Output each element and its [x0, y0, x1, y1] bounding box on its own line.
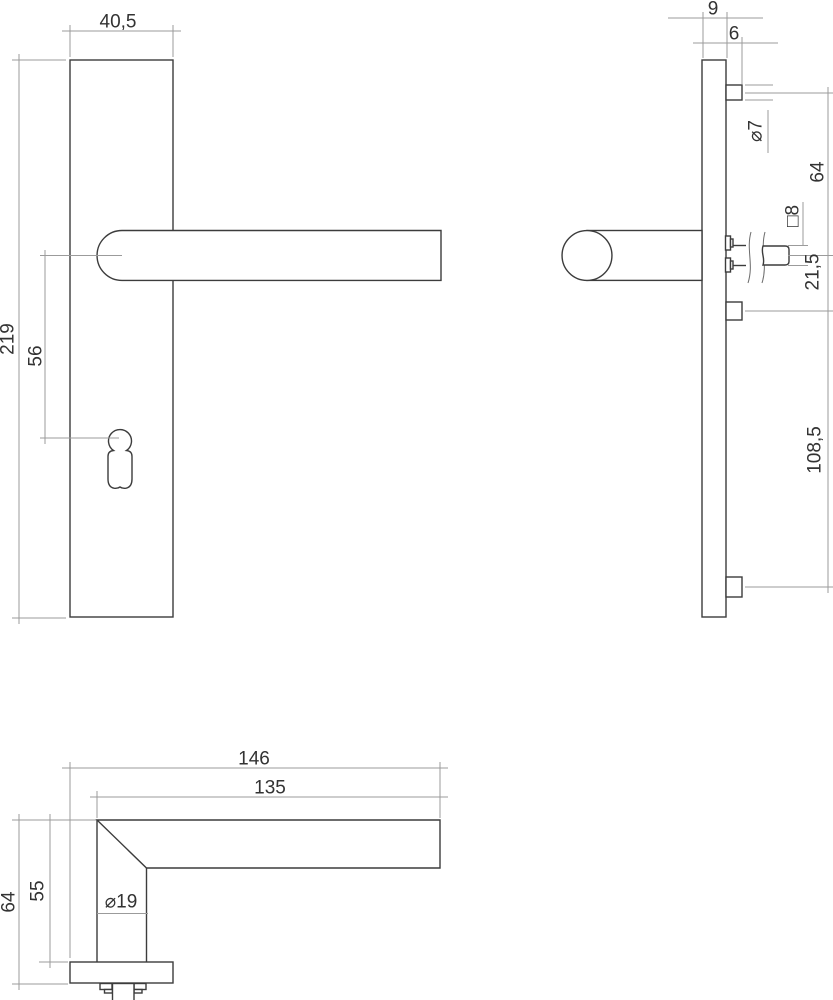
- top-plate-outline: [70, 962, 173, 983]
- top-handle-grip: [97, 820, 440, 868]
- dim-label-front-handle-to-keyhole: 56: [26, 345, 47, 366]
- dim-label-top-neck-depth: 55: [28, 880, 49, 901]
- dim-top-grip-length: 135: [90, 778, 448, 819]
- drawing-canvas: 40,5 219 56: [0, 0, 833, 1000]
- dim-label-front-plate-width: 40,5: [100, 12, 137, 33]
- dim-label-front-plate-height: 219: [0, 323, 19, 355]
- side-screw-boss-top: [726, 85, 742, 100]
- dim-side-screw-dia: ⌀7: [745, 85, 773, 153]
- dim-front-plate-height: 219: [0, 54, 66, 624]
- dim-label-side-screw-spacing: 108,5: [805, 426, 826, 474]
- top-view: 146 135 64 55 ⌀19: [0, 749, 448, 1000]
- dim-label-side-screw-to-spindle: 64: [808, 161, 829, 183]
- break-line-1: [748, 232, 751, 283]
- dim-label-top-grip-dia: ⌀19: [105, 892, 138, 913]
- front-plate-outline: [70, 60, 173, 617]
- spindle-clip-top-lip: [731, 239, 734, 247]
- dim-label-side-screw-dia: ⌀7: [746, 120, 767, 142]
- dim-label-top-overall-length: 146: [238, 749, 270, 770]
- spindle-end: [762, 246, 789, 265]
- dim-label-side-spindle-to-screw: 21,5: [803, 254, 824, 291]
- top-collar-left-lip: [105, 990, 113, 994]
- top-collar-left: [100, 984, 112, 990]
- side-view: 9 6 ⌀7 64 □8 21,5 108,5: [562, 0, 833, 617]
- dim-label-side-boss-depth: 6: [729, 24, 740, 45]
- dim-label-top-grip-length: 135: [254, 778, 286, 799]
- spindle-clip-bottom: [726, 258, 731, 272]
- spindle-clip-bottom-lip: [731, 261, 734, 269]
- top-collar-right: [134, 984, 146, 990]
- dim-label-side-plate-thickness: 9: [708, 0, 719, 20]
- dim-label-top-overall-depth: 64: [0, 891, 20, 913]
- dim-side-plate-thickness: 9: [668, 0, 763, 58]
- side-plate-outline: [702, 60, 726, 617]
- side-screw-boss-bottom: [726, 577, 742, 597]
- dim-label-side-spindle-square: □8: [783, 205, 804, 227]
- top-collar-right-lip: [134, 990, 142, 994]
- dim-top-neck-depth: 55: [28, 814, 69, 968]
- dim-front-plate-width: 40,5: [62, 12, 181, 58]
- spindle-clip-top: [726, 236, 731, 250]
- front-view: 40,5 219 56: [0, 12, 441, 625]
- side-handle-grip-end: [562, 231, 612, 281]
- dim-side-chain: 64 □8 21,5 108,5: [745, 87, 833, 593]
- dim-top-grip-dia: ⌀19: [97, 892, 148, 914]
- technical-drawing-svg: 40,5 219 56: [0, 0, 833, 1000]
- front-handle-lever: [97, 231, 441, 281]
- side-screw-boss-middle: [726, 302, 742, 320]
- top-spindle-square: [113, 984, 135, 1000]
